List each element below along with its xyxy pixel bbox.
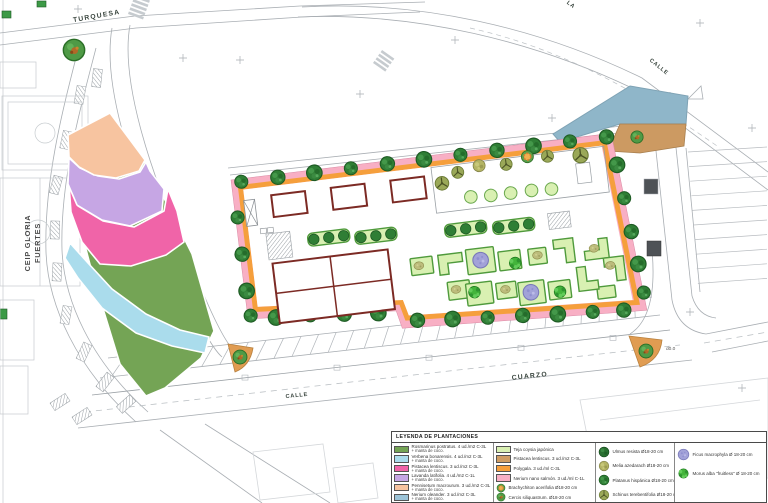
legend-title: LEYENDA DE PLANTACIONES — [392, 432, 766, 443]
stall-line — [689, 162, 767, 167]
legend-label: Morus alba "fruitless" Ø 18-20 cm — [693, 471, 760, 476]
plan-marker — [37, 1, 46, 7]
stairs-hatch — [52, 263, 62, 281]
legend-label: Nerium oleander. 3 ud./m2 C-3L+ manta de… — [412, 492, 476, 502]
tree-icon — [233, 350, 247, 364]
legend-row: Lavanda latifolia. 4 ud./m2 C-1L+ manta … — [394, 473, 491, 483]
legend-row: Nerium oleander. 3 ud./m2 C-3L+ manta de… — [394, 492, 491, 502]
kerb-mark — [518, 345, 524, 350]
drain-label: d0.0 — [666, 346, 676, 352]
ficus-tree-icon — [677, 448, 690, 461]
crosswalk-icon — [373, 50, 394, 72]
legend-row: Ficus macrophyla Ø 18-20 cm — [677, 445, 764, 465]
stall-line — [292, 336, 301, 356]
legend-row: Rosmarinus postratus. 4 ud./m2 C-3L+ man… — [394, 445, 491, 455]
street-label-turquesa: TURQUESA — [73, 9, 121, 24]
building-tan-strip — [608, 124, 686, 153]
stall-line — [688, 147, 767, 152]
legend: LEYENDA DE PLANTACIONES Rosmarinus postr… — [391, 431, 767, 503]
survey-cross-icon — [451, 36, 459, 44]
stall-line — [691, 191, 767, 196]
schinus-tree-icon — [598, 489, 610, 501]
pergola-outline — [390, 176, 426, 202]
stall-line — [696, 249, 767, 254]
legend-row: Cercis siliquastrum. Ø18-20 cm — [496, 492, 593, 502]
legend-row: Pennisetum macrourum. 3 ud./m2 C-3L+ man… — [394, 483, 491, 493]
legend-row: Brachychiton acerifolia Ø18-20 cm — [496, 483, 593, 493]
cercis-tree-icon — [496, 492, 506, 502]
stall-line — [697, 264, 767, 269]
legend-row: Pistacea lentiscus. 3 ud./m2 C-3L+ manta… — [394, 464, 491, 474]
legend-label: Lavanda latifolia. 4 ud./m2 C-1L+ manta … — [412, 473, 476, 483]
paving-hatch — [547, 211, 571, 230]
tree-icon — [631, 131, 643, 143]
stairs-hatch — [60, 305, 72, 324]
pergola-outline — [271, 191, 307, 217]
legend-row: Schinus terebentifolia Ø18-20 cm — [598, 487, 672, 501]
stairs-hatch — [76, 342, 92, 362]
legend-row: Polygala. 3 ud./ml C-3L — [496, 464, 593, 474]
legend-label: Pistacea lentiscus. 3 ud./m2 C-3L+ manta… — [412, 464, 479, 474]
legend-row: Pistacea lentiscus. 3 ud./m2 C-3L — [496, 454, 593, 464]
paving-hatch — [266, 231, 293, 260]
svg-text:FUERTES: FUERTES — [33, 223, 42, 263]
stall-line — [274, 338, 284, 358]
survey-cross-icon — [74, 5, 82, 13]
survey-cross-icon — [686, 308, 694, 316]
legend-label: Nerium nano salmón. 3 ud./ml C-1L — [514, 476, 585, 481]
stairs-hatch — [92, 69, 103, 88]
stall-line — [382, 327, 388, 347]
plan-marker — [2, 11, 11, 18]
stairs-hatch — [50, 393, 70, 410]
legend-row: Ulmus resista Ø18-20 cm — [598, 445, 672, 459]
legend-column: Rosmarinus postratus. 4 ud./m2 C-3L+ man… — [392, 443, 494, 503]
legend-swatch — [394, 446, 409, 454]
legend-column: Ulmus resista Ø18-20 cmMelia azedarach Ø… — [596, 443, 675, 503]
legend-row: Melia azedarach Ø18-20 cm — [598, 459, 672, 473]
legend-body: Rosmarinus postratus. 4 ud./m2 C-3L+ man… — [392, 443, 766, 503]
stall-line — [364, 328, 371, 348]
survey-cross-icon — [179, 54, 187, 62]
platanus-tree-icon — [598, 474, 610, 486]
stall-line — [695, 235, 767, 240]
planter — [597, 285, 616, 299]
school-label: CEIP GLORIA FUERTES — [23, 215, 42, 272]
legend-row: Morus alba "fruitless" Ø 18-20 cm — [677, 464, 764, 484]
legend-label: Teja coysia japónica — [514, 447, 554, 452]
stall-line — [310, 334, 319, 354]
survey-cross-icon — [548, 114, 556, 122]
legend-label: Platanus hispánica Ø18-20 cm — [613, 478, 674, 483]
legend-row: Verbena bonarensis. 4 ud./m2 C-3L+ manta… — [394, 454, 491, 464]
legend-swatch — [496, 446, 511, 454]
svg-text:CEIP GLORIA: CEIP GLORIA — [23, 215, 32, 272]
legend-swatch — [394, 465, 409, 473]
tree-icon — [639, 344, 653, 358]
legend-row: Nerium nano salmón. 3 ud./ml C-1L — [496, 473, 593, 483]
legend-label: Ulmus resista Ø18-20 cm — [613, 449, 664, 454]
legend-label: Polygala. 3 ud./ml C-3L — [514, 466, 561, 471]
legend-label: Pennisetum macrourum. 3 ud./m2 C-3L+ man… — [412, 483, 491, 493]
legend-swatch — [394, 484, 409, 492]
legend-column: Teja coysia japónicaPistacea lentiscus. … — [494, 443, 596, 503]
stall-line — [256, 340, 266, 360]
legend-label: Brachychiton acerifolia Ø18-20 cm — [509, 485, 578, 490]
legend-swatch — [394, 474, 409, 482]
legend-label: Schinus terebentifolia Ø18-20 cm — [613, 492, 676, 497]
morus-tree-icon — [677, 467, 690, 480]
street-label-calle-bottom: CALLE — [285, 392, 308, 400]
pergola-outline — [331, 184, 367, 210]
survey-cross-icon — [236, 56, 244, 64]
plan-drawing: TURQUESA LA CALLE CALLE CUARZO CEIP GLOR… — [0, 0, 768, 503]
stall-line — [694, 220, 768, 225]
stall-line — [692, 205, 767, 210]
street-label-la: LA — [565, 0, 576, 10]
utility-box — [647, 241, 661, 256]
legend-row: Platanus hispánica Ø18-20 cm — [598, 473, 672, 487]
utility-box — [644, 179, 658, 194]
legend-swatch — [496, 474, 511, 482]
legend-swatch — [496, 455, 511, 463]
legend-label: Cercis siliquastrum. Ø18-20 cm — [509, 495, 572, 500]
survey-cross-icon — [696, 19, 704, 27]
legend-swatch — [496, 465, 511, 473]
melia-tree-icon — [598, 460, 610, 472]
ulmus-tree-icon — [598, 446, 610, 458]
school-grounds — [0, 62, 88, 414]
legend-swatch — [394, 455, 409, 463]
site-plan: TURQUESA LA CALLE CALLE CUARZO CEIP GLOR… — [0, 0, 768, 503]
legend-swatch — [394, 494, 409, 502]
stall-line — [346, 330, 353, 350]
street-label-cuarzo: CUARZO — [511, 371, 548, 382]
legend-label: Rosmarinus postratus. 4 ud./m2 C-3L+ man… — [412, 444, 487, 454]
street-label-calle-right: CALLE — [648, 58, 669, 77]
survey-cross-icon — [738, 384, 746, 392]
legend-label: Verbena bonarensis. 4 ud./m2 C-3L+ manta… — [412, 454, 483, 464]
legend-label: Melia azedarach Ø18-20 cm — [613, 463, 670, 468]
stall-line — [698, 278, 767, 283]
brachychiton-tree-icon — [496, 483, 506, 493]
right-parking-lot — [688, 147, 767, 283]
legend-column: Ficus macrophyla Ø 18-20 cmMorus alba "f… — [675, 443, 766, 503]
legend-label: Ficus macrophyla Ø 18-20 cm — [693, 452, 753, 457]
plan-marker — [0, 309, 7, 319]
survey-cross-icon — [748, 124, 756, 132]
legend-row: Teja coysia japónica — [496, 445, 593, 455]
existing-tree-icon — [63, 39, 84, 60]
survey-cross-icon — [356, 90, 364, 98]
stairs-hatch — [72, 407, 92, 424]
stall-line — [328, 332, 336, 352]
stairs-hatch — [50, 221, 60, 239]
legend-label: Pistacea lentiscus. 3 ud./m2 C-3L — [514, 456, 581, 461]
